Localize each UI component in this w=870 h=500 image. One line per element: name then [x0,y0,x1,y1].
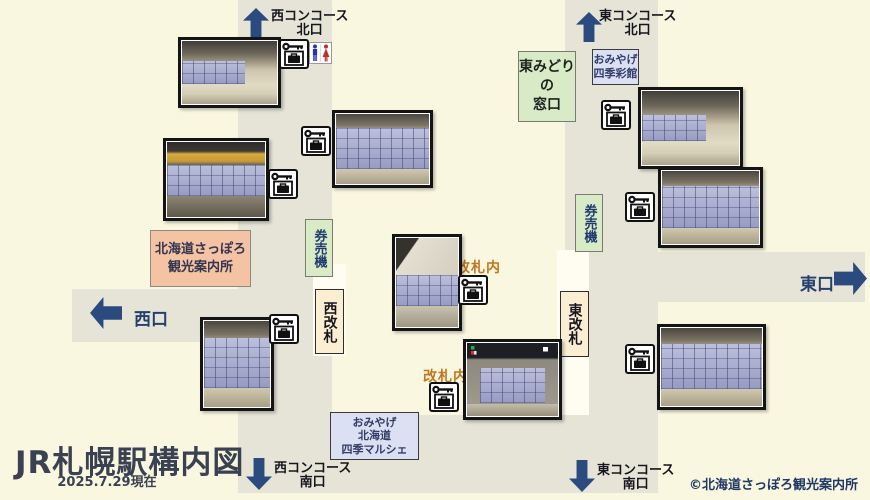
east-exit-label: 東口 [800,270,834,295]
west-south-exit-label: 西コンコース南口 [274,462,351,490]
restroom-icon [309,42,332,64]
locker-photo-east-mid [658,167,763,248]
locker-photo-east-gate [657,324,766,410]
souvenir-shikisaikan-box: おみやげ四季彩館 [592,49,639,85]
locker-photo-inside-gate-top [392,234,462,331]
east-north-exit-label: 東コンコース北口 [599,10,676,38]
coin-locker-icon [269,314,299,344]
ticket-machine-east-box: 券売機 [575,194,603,252]
locker-photo-west-gate [200,317,274,411]
as-of-date: 2025.7.29現在 [22,471,192,490]
coin-locker-icon [301,126,331,156]
west-gate-box: 西改札 [315,289,344,354]
west-north-exit-label: 西コンコース北口 [271,10,348,38]
souvenir-marche-box: おみやげ北海道四季マルシェ [330,412,419,460]
midori-madoguchi-box: 東みどりの窓口 [518,51,576,122]
locker-photo-west-mid [163,138,269,221]
west-exit-label: 西口 [134,305,168,330]
tourist-info-box: 北海道さっぽろ観光案内所 [150,230,251,287]
coin-locker-icon [429,382,459,412]
coin-locker-icon [601,100,631,130]
ticket-machine-west-box: 券売機 [305,219,333,277]
copyright-text: ©北海道さっぽろ観光案内所 [689,474,858,493]
east-south-exit-label: 東コンコース南口 [597,464,674,492]
station-map: 西コンコース北口 東コンコース北口 西コンコース南口 東コンコース南口 西口 東… [0,0,870,500]
coin-locker-icon [458,275,488,305]
coin-locker-icon [625,192,655,222]
coin-locker-icon [268,169,298,199]
inside-gate-label-top: 改札内 [456,257,501,277]
coin-locker-icon [279,39,309,69]
locker-photo-west-north [178,37,281,108]
locker-photo-west-upper [332,110,433,188]
coin-locker-icon [625,344,655,374]
locker-photo-east-upper [638,87,743,169]
locker-photo-inside-gate-bottom [463,339,562,420]
east-gate-box: 東改札 [560,291,589,357]
